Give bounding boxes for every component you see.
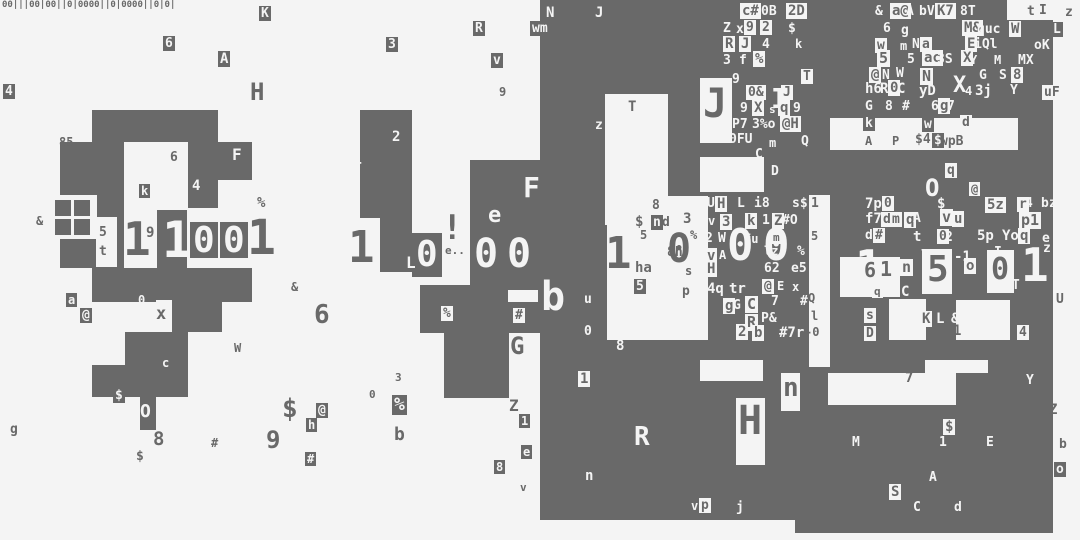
noise-glyph: 0: [369, 389, 376, 400]
noise-glyph: z: [1065, 6, 1073, 19]
noise-glyph: 9: [793, 102, 801, 115]
noise-glyph: K: [920, 311, 932, 327]
noise-glyph: d: [960, 115, 972, 130]
noise-glyph: e..: [445, 245, 465, 256]
noise-glyph: Z: [509, 398, 519, 414]
noise-glyph: G: [733, 299, 741, 312]
noise-glyph: m: [890, 212, 902, 227]
noise-glyph: 1: [605, 232, 632, 276]
noise-glyph: #: [800, 295, 808, 308]
noise-glyph: u: [952, 211, 964, 227]
noise-glyph: f: [739, 54, 747, 67]
noise-glyph: e: [521, 445, 532, 459]
noise-glyph: @H: [780, 116, 801, 132]
noise-glyph: 3: [683, 212, 691, 226]
noise-glyph: $: [136, 450, 144, 463]
noise-glyph: L: [737, 197, 745, 210]
noise-glyph: 4: [1025, 197, 1033, 210]
noise-glyph: L: [936, 312, 944, 326]
noise-glyph: t: [1027, 5, 1035, 18]
noise-glyph: v: [708, 215, 715, 227]
noise-glyph: C: [901, 285, 909, 299]
noise-glyph: 1: [809, 196, 821, 211]
noise-glyph: m: [769, 137, 776, 149]
noise-glyph: #: [902, 100, 910, 113]
noise-glyph: C: [755, 148, 763, 161]
noise-glyph: 3: [720, 214, 732, 230]
noise-glyph: J: [703, 84, 727, 124]
noise-glyph: c: [162, 357, 169, 369]
noise-glyph: %: [392, 395, 407, 415]
noise-glyph: e5: [791, 262, 807, 275]
noise-glyph: 5: [877, 50, 890, 67]
noise-glyph: W: [896, 67, 904, 80]
noise-glyph: J: [739, 36, 751, 52]
noise-glyph: E: [986, 436, 994, 449]
noise-glyph: tr: [729, 282, 746, 296]
noise-glyph: $: [635, 215, 643, 229]
noise-glyph: 5: [927, 252, 949, 288]
noise-glyph: $: [282, 396, 298, 422]
noise-glyph: $: [943, 419, 955, 435]
noise-glyph: F: [523, 174, 540, 202]
noise-glyph: 3: [395, 372, 402, 383]
noise-glyph: lz: [764, 245, 778, 257]
noise-glyph: wpB: [940, 135, 963, 148]
noise-glyph: &: [291, 281, 298, 293]
noise-glyph: K7: [935, 3, 956, 19]
noise-glyph: !: [442, 211, 462, 245]
noise-glyph: L: [1051, 22, 1063, 37]
noise-glyph: h: [306, 418, 317, 432]
noise-glyph: 4: [192, 179, 200, 193]
noise-glyph: -1: [954, 250, 971, 264]
noise-glyph: b: [1059, 438, 1067, 451]
noise-glyph: 4: [1017, 325, 1029, 340]
noise-glyph: fu: [744, 233, 758, 245]
noise-glyph: k: [863, 116, 875, 131]
noise-glyph: x: [736, 23, 744, 36]
noise-glyph: 0: [474, 234, 498, 274]
noise-glyph: Q: [801, 135, 809, 148]
noise-glyph: p: [682, 285, 690, 298]
noise-glyph: 5p: [977, 229, 994, 243]
noise-glyph: q: [872, 285, 883, 298]
noise-glyph: m: [900, 40, 907, 52]
noise-glyph: Yo: [1002, 229, 1019, 243]
noise-glyph: %: [257, 196, 265, 210]
noise-glyph: R: [723, 36, 735, 52]
noise-glyph: Y: [1026, 374, 1034, 387]
noise-glyph: 9: [740, 102, 748, 115]
noise-glyph: @: [969, 182, 980, 196]
noise-glyph: j: [736, 501, 744, 514]
glyph-layer: K6AH43Rwmv9856Fk4%&5t911001a@0xc$O8$#9$h…: [0, 0, 1080, 540]
noise-glyph: 9: [499, 86, 506, 98]
noise-glyph: G: [510, 334, 524, 358]
noise-glyph: H: [705, 261, 717, 277]
noise-glyph: g: [10, 423, 18, 436]
noise-glyph: 5: [907, 53, 915, 66]
noise-glyph: 7: [771, 295, 779, 308]
noise-glyph: G: [865, 100, 873, 113]
noise-glyph: U: [1056, 293, 1064, 306]
noise-glyph: w: [922, 117, 934, 132]
noise-glyph: k: [795, 38, 802, 50]
noise-glyph: 0: [416, 237, 438, 273]
noise-glyph: 7p: [865, 197, 882, 211]
noise-glyph: 2: [392, 130, 400, 144]
noise-glyph: 62: [764, 262, 780, 275]
noise-glyph: oK: [1034, 39, 1050, 52]
noise-glyph: 1: [939, 436, 947, 449]
noise-glyph: 0: [882, 196, 894, 211]
noise-glyph: 3%o: [752, 118, 775, 131]
noise-glyph: 1: [162, 215, 192, 265]
noise-glyph: F: [232, 147, 242, 163]
noise-glyph: U: [707, 197, 715, 210]
noise-glyph: %: [753, 51, 765, 67]
noise-glyph: 1: [247, 214, 276, 262]
noise-glyph: k: [139, 184, 150, 198]
noise-glyph: uF: [1042, 85, 1062, 100]
noise-glyph: L: [406, 255, 416, 271]
noise-glyph: 9: [732, 73, 740, 86]
noise-glyph: #: [305, 452, 316, 466]
noise-glyph: 8: [1011, 67, 1023, 83]
binary-header: 00|||00|00||0|0000||0|0000||0|0|: [2, 1, 175, 10]
noise-glyph: N: [546, 6, 554, 20]
noise-glyph: 1: [880, 259, 892, 279]
noise-glyph: %: [797, 245, 805, 258]
noise-glyph: 1: [578, 371, 590, 387]
noise-glyph: b: [394, 426, 405, 444]
noise-glyph: p: [699, 498, 711, 513]
noise-glyph: T: [626, 99, 638, 115]
noise-glyph: v: [520, 482, 527, 493]
noise-glyph: f7: [865, 212, 882, 226]
noise-glyph: #7r: [779, 326, 804, 340]
noise-glyph: 8T: [960, 5, 976, 18]
noise-glyph: %: [690, 229, 697, 241]
noise-glyph: O: [140, 403, 151, 421]
noise-glyph: W: [1009, 21, 1021, 37]
noise-glyph: J: [781, 85, 793, 100]
noise-glyph: v: [691, 500, 698, 512]
noise-glyph: $: [113, 388, 125, 403]
noise-glyph: W: [718, 232, 726, 245]
noise-glyph: H: [250, 80, 264, 104]
noise-glyph: s$: [792, 197, 808, 210]
noise-glyph: 5z: [985, 197, 1006, 213]
noise-glyph: H: [715, 196, 727, 212]
noise-glyph: n: [900, 259, 913, 276]
noise-glyph: t: [99, 245, 107, 258]
noise-glyph: 4: [3, 84, 15, 99]
noise-glyph: 8: [616, 339, 624, 353]
noise-glyph: 2: [736, 324, 748, 340]
noise-glyph: I: [1039, 4, 1047, 17]
noise-glyph: 6: [314, 302, 330, 328]
noise-glyph: T: [354, 162, 362, 175]
noise-glyph: p1: [1019, 212, 1041, 229]
noise-glyph: K: [259, 6, 271, 21]
noise-glyph: 9: [266, 428, 280, 452]
noise-glyph: %: [441, 306, 453, 321]
noise-glyph: b: [752, 325, 764, 341]
noise-glyph: X: [752, 100, 764, 116]
noise-glyph: 5: [640, 229, 647, 241]
noise-glyph: k: [745, 213, 757, 229]
noise-glyph: 1: [123, 216, 151, 262]
noise-glyph: C: [913, 501, 921, 514]
noise-glyph: v: [491, 53, 503, 68]
noise-glyph: 0: [507, 234, 531, 274]
noise-glyph: 8: [885, 100, 893, 113]
noise-glyph: q: [945, 163, 957, 178]
noise-glyph: 8: [153, 430, 164, 449]
noise-glyph: Z: [723, 22, 731, 35]
noise-glyph: 7: [905, 371, 913, 385]
noise-glyph: c#: [740, 3, 761, 19]
noise-glyph: 4q: [707, 282, 724, 296]
noise-glyph: 2: [705, 232, 713, 245]
noise-glyph: A: [719, 249, 726, 261]
noise-glyph: C: [897, 82, 905, 96]
noise-glyph: 8h: [667, 246, 683, 259]
noise-glyph: R: [473, 21, 485, 36]
noise-glyph: V: [911, 312, 919, 326]
noise-glyph: A: [218, 51, 230, 67]
noise-glyph: 5: [634, 279, 646, 294]
noise-glyph: D: [864, 326, 876, 341]
noise-glyph: 1: [762, 214, 770, 227]
noise-glyph: 0: [223, 223, 245, 259]
noise-glyph: X%: [889, 327, 907, 342]
noise-glyph: o: [1054, 462, 1066, 477]
noise-glyph: P&: [761, 312, 777, 325]
noise-glyph: 85: [59, 136, 73, 148]
noise-glyph: -0: [805, 326, 819, 338]
noise-glyph: 4: [762, 38, 770, 51]
noise-glyph: Y: [1010, 84, 1018, 97]
noise-glyph: P7: [732, 118, 748, 131]
noise-glyph: e: [488, 205, 501, 227]
noise-glyph: Y: [970, 54, 977, 66]
noise-glyph: 3j: [975, 84, 992, 98]
noise-glyph: 0: [138, 294, 145, 306]
noise-glyph: yD: [919, 84, 936, 98]
noise-glyph: 0: [727, 224, 754, 268]
noise-glyph: A: [929, 471, 937, 484]
noise-glyph: H: [738, 401, 762, 441]
noise-glyph: S: [999, 69, 1007, 82]
noise-glyph: 0: [584, 325, 592, 338]
noise-glyph: 0&: [746, 85, 766, 100]
noise-glyph: 6: [170, 151, 178, 164]
noise-glyph: $4: [915, 133, 931, 146]
noise-glyph: #: [513, 308, 525, 323]
noise-glyph: N: [912, 38, 920, 51]
noise-glyph: 1: [348, 226, 375, 270]
noise-glyph: 3: [723, 54, 731, 67]
noise-glyph: #O: [782, 214, 798, 227]
noise-glyph: E: [777, 280, 784, 292]
noise-glyph: 2: [697, 262, 705, 275]
noise-glyph: 0FU: [729, 133, 752, 146]
noise-glyph: M: [852, 436, 860, 449]
noise-glyph: x: [792, 281, 799, 293]
noise-glyph: 1: [953, 324, 961, 338]
noise-glyph: &: [875, 5, 883, 18]
noise-glyph: @: [762, 279, 774, 294]
noise-glyph: t: [913, 230, 921, 244]
noise-glyph: wm: [530, 21, 550, 36]
noise-glyph: G: [979, 69, 987, 82]
noise-glyph: 6: [883, 22, 891, 35]
noise-glyph: A: [865, 135, 872, 147]
noise-glyph: i8: [754, 197, 770, 210]
noise-glyph: 5: [811, 230, 818, 242]
noise-glyph: M: [994, 54, 1001, 66]
noise-glyph: &: [36, 215, 43, 227]
noise-glyph: 4: [965, 85, 972, 97]
noise-glyph: 0B: [761, 5, 777, 18]
noise-glyph: 0: [193, 223, 215, 259]
noise-glyph: W: [234, 342, 241, 354]
noise-glyph: d: [954, 501, 962, 514]
noise-glyph: @: [316, 403, 328, 418]
noise-glyph: b: [541, 277, 565, 317]
noise-glyph: m: [771, 231, 782, 244]
noise-glyph: MX: [1018, 54, 1034, 67]
noise-glyph: quc: [977, 23, 1000, 36]
noise-glyph: 6: [864, 260, 876, 280]
noise-glyph: #: [211, 437, 218, 449]
noise-glyph: x: [156, 306, 166, 323]
noise-glyph: q: [778, 100, 790, 116]
noise-glyph: 8: [652, 199, 660, 212]
noise-glyph: Q: [808, 292, 815, 304]
noise-glyph: s: [864, 308, 876, 323]
noise-glyph: A: [906, 5, 914, 18]
noise-glyph: $: [788, 22, 796, 35]
noise-glyph: 7: [947, 100, 955, 113]
noise-glyph: a: [66, 293, 77, 307]
noise-glyph: 2D: [786, 3, 807, 19]
noise-glyph: 6: [163, 36, 175, 51]
noise-glyph: 2: [760, 20, 772, 35]
noise-glyph: bz: [1041, 197, 1057, 210]
noise-glyph: 2: [945, 231, 953, 244]
noise-glyph: g: [901, 24, 909, 37]
noise-glyph: s: [685, 265, 692, 277]
noise-glyph: A: [913, 212, 921, 225]
noise-glyph: z: [595, 119, 603, 132]
noise-glyph: 1: [519, 414, 530, 428]
noise-glyph: R: [634, 424, 650, 450]
noise-glyph: u: [584, 293, 592, 306]
noise-glyph: iQl: [974, 38, 997, 51]
glitch-canvas: K6AH43Rwmv9856Fk4%&5t911001a@0xc$O8$#9$h…: [0, 0, 1080, 540]
noise-glyph: ha: [635, 261, 652, 275]
noise-glyph: n: [783, 375, 799, 401]
noise-glyph: 3S: [937, 53, 953, 66]
noise-glyph: J: [595, 6, 603, 20]
noise-glyph: 5: [99, 226, 107, 239]
noise-glyph: T: [801, 69, 813, 84]
noise-glyph: s: [769, 104, 776, 115]
noise-glyph: Z: [1049, 403, 1057, 417]
noise-glyph: P: [892, 135, 899, 147]
noise-glyph: n: [585, 469, 593, 483]
noise-glyph: eT: [1004, 279, 1020, 292]
noise-glyph: z: [1043, 242, 1051, 255]
noise-glyph: 3: [386, 37, 398, 52]
noise-glyph: C: [745, 296, 758, 313]
noise-glyph: S: [889, 484, 901, 500]
noise-glyph: bV: [919, 5, 935, 18]
noise-glyph: l: [811, 310, 818, 322]
noise-glyph: D: [771, 165, 779, 178]
noise-glyph: 9: [744, 20, 756, 35]
noise-glyph: @: [80, 308, 92, 323]
noise-glyph: 8: [494, 460, 505, 474]
